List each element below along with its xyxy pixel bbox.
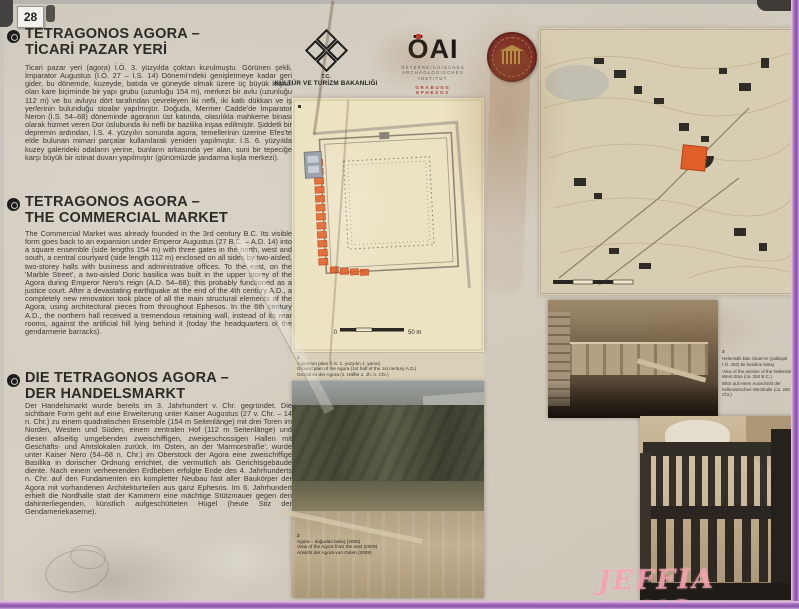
stoa-excavation-photo — [548, 300, 718, 418]
title-line: TİCARİ PAZAR YERİ — [25, 42, 200, 58]
map-scale-bar — [553, 280, 633, 284]
left-edge — [0, 0, 4, 609]
section-marker-icon — [7, 30, 20, 43]
corner-artifact — [46, 5, 55, 22]
site-map-figure — [539, 28, 796, 295]
ground-plan-figure: 0 50 m — [292, 98, 484, 352]
sign-number-badge: 28 — [17, 6, 44, 28]
photo-mountains — [292, 405, 484, 483]
caption-german: Ansicht der Agora von Osten (2009) — [297, 550, 477, 556]
title-line: THE COMMERCIAL MARKET — [25, 210, 228, 226]
section-marker-icon — [7, 198, 20, 211]
turkish-body-text: Ticari pazar yeri (agora) İ.Ö. 3. yüzyıl… — [25, 64, 292, 162]
section-marker-icon — [7, 374, 20, 387]
ministry-label: T.C. KÜLTÜR VE TURİZM BAKANLIĞI — [266, 74, 386, 87]
aerial-caption: 2 Agora – doğudan bakış (2009) View of t… — [297, 533, 477, 556]
title-line: TETRAGONOS AGORA – — [25, 26, 200, 42]
stain-streak — [483, 44, 532, 295]
frame-border-right — [791, 0, 799, 609]
figure-number: 3 — [722, 349, 795, 354]
corner-shadow-topleft — [0, 0, 13, 27]
oai-red-accent — [416, 34, 421, 39]
north-gate — [379, 132, 389, 140]
photo-slope — [292, 481, 484, 514]
german-section-title: DIE TETRAGONOS AGORA – DER HANDELSMARKT — [25, 370, 229, 402]
title-line: DER HANDELSMARKT — [25, 386, 229, 402]
oai-acronym: ÖAI — [398, 36, 468, 62]
harbor-area — [545, 65, 609, 101]
ground-plan-drawing: 0 50 m — [292, 98, 484, 352]
plan-caption: 1 Agora'nın planı (İ.S. 1. yüzyılın 1. y… — [292, 353, 484, 380]
ministry-name: KÜLTÜR VE TURİZM BAKANLIĞI — [266, 80, 386, 87]
english-section-title: TETRAGONOS AGORA – THE COMMERCIAL MARKET — [25, 194, 228, 226]
english-body-text: The Commercial Market was already founde… — [25, 230, 292, 336]
title-line: TETRAGONOS AGORA – — [25, 194, 228, 210]
caption-german: Grundriss der Agora (1. Hälfte 1. Jh. n.… — [297, 372, 484, 378]
oai-logo: ÖAI ÖSTERREICHISCHES ARCHÄOLOGISCHES INS… — [398, 36, 468, 95]
photo-wall-courses — [555, 342, 708, 375]
turkish-section-title: TETRAGONOS AGORA – TİCARİ PAZAR YERİ — [25, 26, 200, 58]
caption-german: Blick auf einen Ausschnitt der hellenist… — [722, 381, 795, 397]
caption-turkish: Helenistik Batı Stoa'nın (yaklaşık İ.Ö. … — [722, 356, 795, 367]
plan-scale-label: 50 m — [408, 330, 421, 336]
oai-excavation-label: GRABUNG EPHESOS — [398, 85, 468, 95]
german-body-text: Der Handelsmarkt wurde bereits im 3. Jah… — [25, 402, 292, 516]
oai-subline: INSTITUT — [398, 76, 468, 81]
frame-border-bottom — [0, 601, 799, 609]
ephesus-map-drawing — [539, 28, 796, 295]
gate-building — [304, 151, 322, 178]
caption-english: View of the section of the hellenistic W… — [722, 369, 795, 380]
title-line: DIE TETRAGONOS AGORA – — [25, 370, 229, 386]
information-sign: 28 TETRAGONOS AGORA – TİCARİ PAZAR YERİ … — [0, 0, 799, 609]
top-edge — [0, 0, 799, 4]
photo-trench-shadow — [548, 383, 718, 418]
aerial-photo-figure: 2 Agora – doğudan bakış (2009) View of t… — [292, 381, 484, 598]
agora-location-highlight — [681, 145, 707, 171]
stoa-caption: 3 Helenistik Batı Stoa'nın (yaklaşık İ.Ö… — [722, 349, 795, 399]
